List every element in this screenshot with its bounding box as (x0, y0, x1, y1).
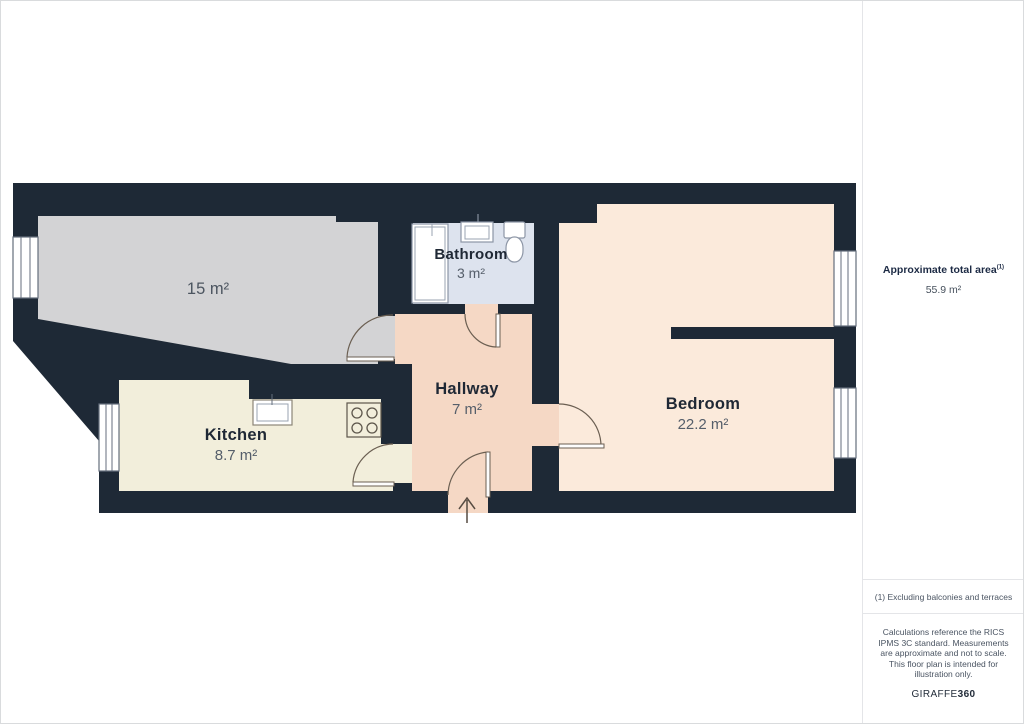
hallway-name-label: Hallway (435, 380, 499, 398)
bedroom-name-label: Bedroom (666, 395, 741, 413)
kitchen-area-label: 8.7 m² (215, 447, 258, 464)
living-room-area-label: 15 m² (187, 280, 230, 298)
shower (412, 224, 448, 303)
bathroom-area-label: 3 m² (457, 265, 485, 281)
footnote: (1) Excluding balconies and terraces (863, 579, 1024, 614)
kitchen-doorway (393, 444, 412, 483)
living-doorway (378, 316, 395, 359)
total-area-value: 55.9 m² (863, 284, 1024, 296)
brand-logo: GIRAFFE360 (863, 689, 1024, 700)
kitchen-name-label: Kitchen (205, 426, 268, 444)
window-kitchen (99, 404, 119, 471)
page: 15 m² Bathroom 3 m² Kitchen 8.7 m² Hallw… (0, 0, 1024, 724)
window-bedroom-top (834, 251, 856, 326)
total-area-note-ref: (1) (997, 265, 1004, 271)
disclaimer-block: Calculations reference the RICS IPMS 3C … (863, 615, 1024, 700)
total-area-label: Approximate total area(1) (863, 264, 1024, 276)
bedroom-area-label: 22.2 m² (678, 416, 729, 433)
bathroom-name-label: Bathroom (434, 246, 507, 263)
bedroom-doorway (532, 404, 559, 446)
disclaimer-text: Calculations reference the RICS IPMS 3C … (863, 615, 1024, 680)
window-living (13, 237, 38, 298)
window-bedroom-bottom (834, 388, 856, 458)
hallway-area-label: 7 m² (452, 401, 482, 418)
info-sidebar: Approximate total area(1) 55.9 m² (1) Ex… (862, 1, 1024, 723)
entrance-doorway (448, 491, 488, 513)
bedroom-wall-stub (671, 327, 834, 339)
total-area-block: Approximate total area(1) 55.9 m² (863, 264, 1024, 296)
bathroom-doorway (465, 304, 498, 314)
